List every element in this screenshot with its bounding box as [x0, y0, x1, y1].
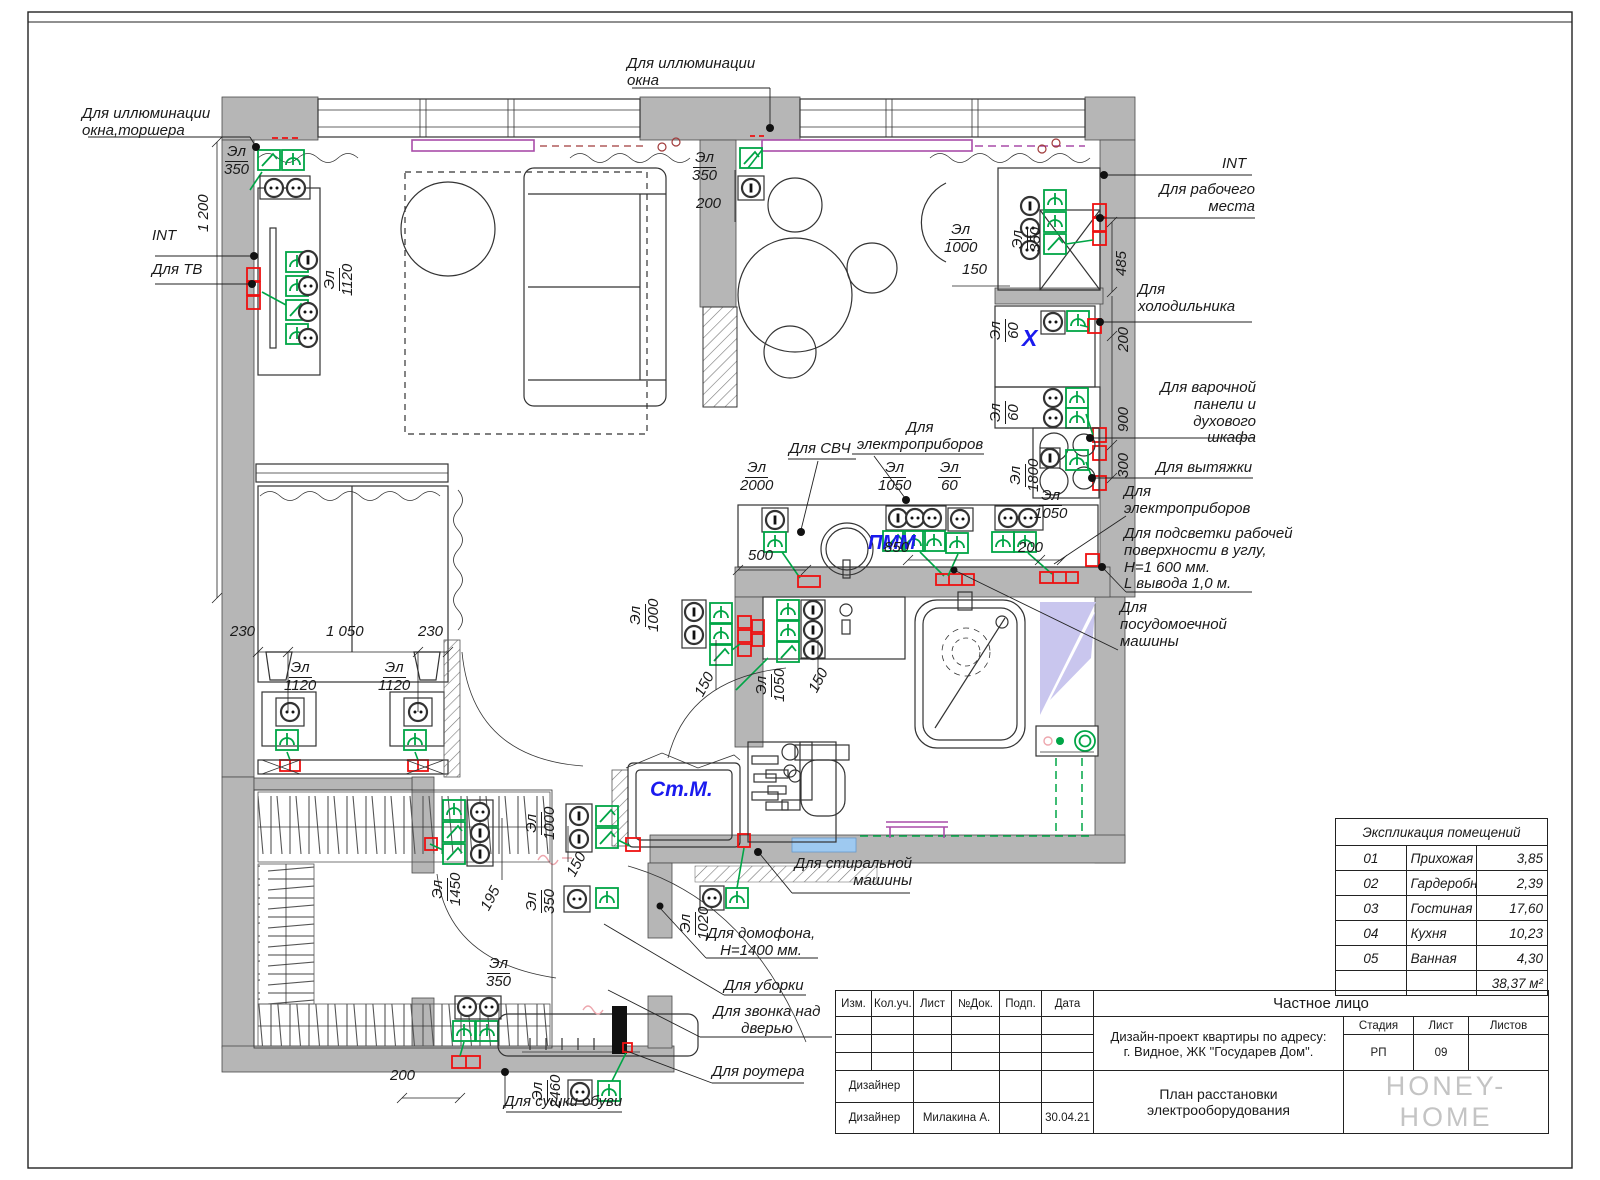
stamp-col-dok: №Док.: [952, 991, 1000, 1017]
designer-name: Милакина А.: [914, 1102, 1000, 1134]
stamp-col-list: Лист: [914, 991, 952, 1017]
stamp-col-podp: Подп.: [1000, 991, 1042, 1017]
stage-label: Стадия: [1344, 1017, 1414, 1035]
stage-value: РП: [1344, 1035, 1414, 1071]
stamp-col-izm: Изм.: [836, 991, 872, 1017]
table-row: 03Гостиная17,60: [1336, 896, 1548, 921]
project-address: Дизайн-проект квартиры по адресу: г. Вид…: [1094, 1017, 1344, 1071]
drawing-title: План расстановки электрооборудования: [1094, 1071, 1344, 1134]
stamp-col-data: Дата: [1042, 991, 1094, 1017]
sheets-label: Листов: [1469, 1017, 1549, 1035]
client-name: Частное лицо: [1094, 991, 1549, 1017]
company-logo: HONEY-HOME: [1344, 1071, 1549, 1134]
stamp-col-koluch: Кол.уч.: [872, 991, 914, 1017]
table-row: 04Кухня10,23: [1336, 921, 1548, 946]
sheet-number: 09: [1414, 1035, 1469, 1071]
sheet-label: Лист: [1414, 1017, 1469, 1035]
room-explication-table: Экспликация помещений 01Прихожая3,85 02Г…: [1335, 818, 1548, 996]
drawing-sheet: Для иллюминации окна,торшера1 200INTДля …: [0, 0, 1600, 1180]
designer-role-1: Дизайнер: [836, 1071, 914, 1103]
table-row: 05Ванная4,30: [1336, 946, 1548, 971]
designer-date: 30.04.21: [1042, 1102, 1094, 1134]
explication-title: Экспликация помещений: [1336, 819, 1548, 846]
title-block: Изм. Кол.уч. Лист №Док. Подп. Дата Частн…: [835, 990, 1549, 1134]
designer-role-2: Дизайнер: [836, 1102, 914, 1134]
table-row: 02Гардеробная2,39: [1336, 871, 1548, 896]
table-row: 01Прихожая3,85: [1336, 846, 1548, 871]
